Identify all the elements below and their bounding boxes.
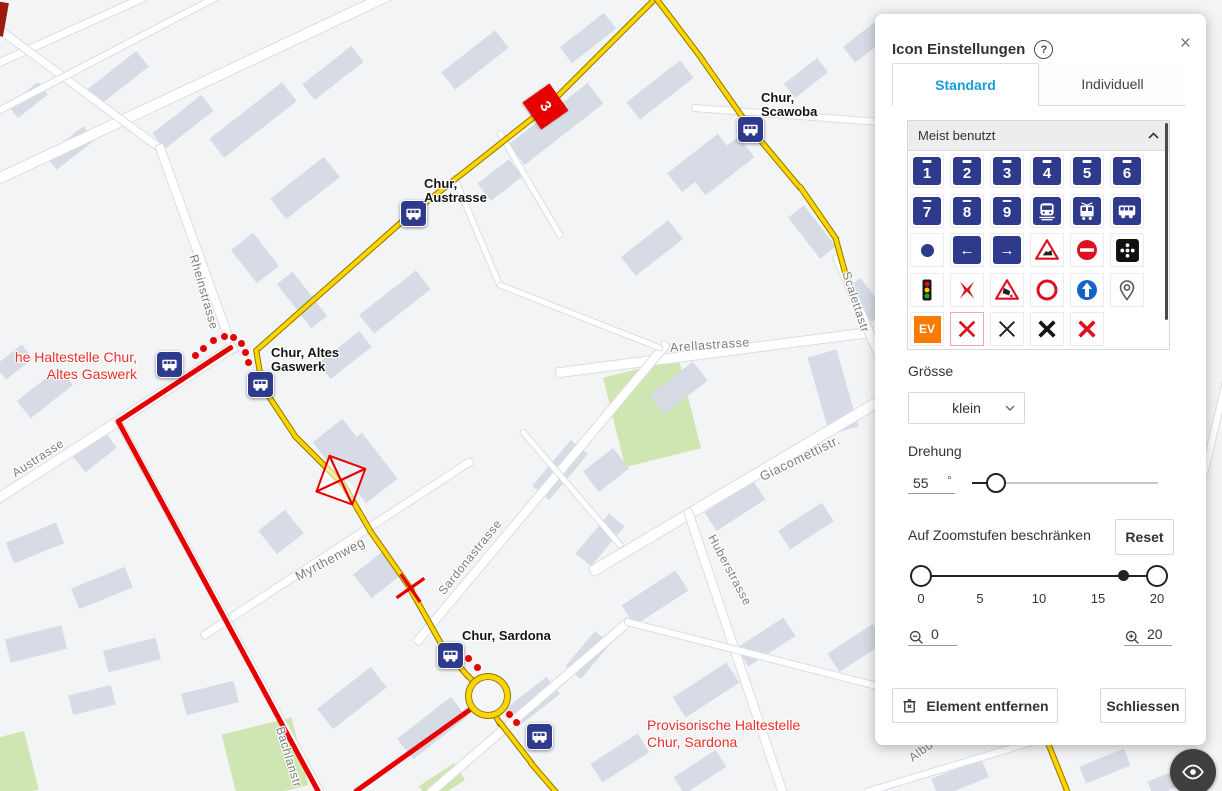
detour-dot <box>230 334 237 341</box>
icon-line-4[interactable]: 4 <box>1030 154 1064 188</box>
chevron-down-icon <box>1005 405 1015 411</box>
icon-pin[interactable] <box>1110 273 1144 307</box>
building <box>359 270 431 333</box>
detour-dot <box>245 359 252 366</box>
building <box>1079 749 1130 784</box>
detour-dot <box>221 333 228 340</box>
rotation-slider-handle[interactable] <box>986 473 1006 493</box>
panel-header: Icon Einstellungen ? <box>892 40 1053 59</box>
stop-label: Chur, Austrasse <box>424 177 487 205</box>
accordion-most-used[interactable]: Meist benutzt <box>908 121 1169 151</box>
remove-element-label: Element entfernen <box>926 698 1048 714</box>
icon-line-1[interactable]: 1 <box>910 154 944 188</box>
trash-icon <box>901 697 918 714</box>
icon-cross-pinch[interactable] <box>950 273 984 307</box>
stop-label: Provisorische Haltestelle Chur, Sardona <box>647 717 800 751</box>
panel-title: Icon Einstellungen <box>892 41 1025 58</box>
zoom-range-min-handle[interactable] <box>910 565 932 587</box>
icon-ev[interactable]: EV <box>910 312 944 346</box>
icon-line-7[interactable]: 7 <box>910 194 944 228</box>
zoom-restrict-label: Auf Zoomstufen beschränken <box>908 527 1091 543</box>
reset-button[interactable]: Reset <box>1115 519 1174 555</box>
rotation-input[interactable]: 55 <box>913 475 929 491</box>
detour-dot <box>513 719 520 726</box>
building <box>560 13 616 63</box>
building <box>231 233 279 283</box>
close-panel-label: Schliessen <box>1106 698 1179 714</box>
street <box>497 282 663 351</box>
tab-bar: Standard Individuell <box>892 63 1186 106</box>
zoom-scale-20: 20 <box>1137 591 1177 606</box>
icon-grid: 123456789←→EV <box>908 151 1169 346</box>
stop-label: Chur, Scawoba <box>761 91 817 119</box>
icon-line-3[interactable]: 3 <box>990 154 1024 188</box>
building <box>591 734 650 783</box>
icon-construction[interactable] <box>1030 233 1064 267</box>
icon-x-thin[interactable] <box>990 312 1024 346</box>
zoom-scale-5: 5 <box>960 591 1000 606</box>
icon-x-redbold[interactable] <box>1070 312 1104 346</box>
detour-dot <box>192 352 199 359</box>
icon-settings-panel: Icon Einstellungen ? × Standard Individu… <box>875 14 1206 745</box>
zoom-scale-15: 15 <box>1078 591 1118 606</box>
icon-library-box: Meist benutzt 123456789←→EV <box>907 120 1170 350</box>
building <box>209 82 296 158</box>
icon-dot[interactable] <box>910 233 944 267</box>
bus-stop-icon[interactable] <box>156 351 183 378</box>
closure-x-marker[interactable] <box>392 571 428 611</box>
icon-line-6[interactable]: 6 <box>1110 154 1144 188</box>
building <box>626 60 693 119</box>
rotation-label: Drehung <box>908 443 962 459</box>
icon-ring[interactable] <box>1030 273 1064 307</box>
icon-grid-scrollbar[interactable] <box>1165 123 1168 320</box>
icon-line-2[interactable]: 2 <box>950 154 984 188</box>
route-yellow <box>528 760 560 791</box>
street-label: Sardonastrasse <box>435 517 504 598</box>
building <box>181 681 239 715</box>
detour-dot <box>506 711 513 718</box>
building <box>258 510 303 555</box>
icon-arrow-right[interactable]: → <box>990 233 1024 267</box>
route-yellow <box>649 0 706 62</box>
park-area <box>0 731 39 791</box>
icon-tram[interactable] <box>1070 194 1104 228</box>
street-label: Giacomettistr. <box>757 432 843 484</box>
bus-stop-icon[interactable] <box>737 116 764 143</box>
icon-x-black[interactable] <box>1030 312 1064 346</box>
building <box>317 667 387 729</box>
tab-standard[interactable]: Standard <box>892 63 1039 106</box>
size-value: klein <box>952 400 981 416</box>
zoom-range-current-dot[interactable] <box>1118 570 1129 581</box>
size-label: Grösse <box>908 363 953 379</box>
bus-stop-icon[interactable] <box>247 371 274 398</box>
stop-label: Chur, Altes Gaswerk <box>271 346 339 374</box>
detour-dot <box>242 349 249 356</box>
zoom-in-icon <box>1124 629 1141 646</box>
icon-arrow-up[interactable] <box>1070 273 1104 307</box>
icon-line-9[interactable]: 9 <box>990 194 1024 228</box>
icon-line-8[interactable]: 8 <box>950 194 984 228</box>
zoom-scale-10: 10 <box>1019 591 1059 606</box>
building <box>622 571 689 626</box>
icon-bus[interactable] <box>1110 194 1144 228</box>
stop-label: Chur, Sardona <box>462 629 551 643</box>
icon-arrow-left[interactable]: ← <box>950 233 984 267</box>
detour-dot <box>210 337 217 344</box>
building <box>441 30 508 89</box>
rotation-input-underline <box>908 493 955 494</box>
zoom-min-underline <box>908 645 957 646</box>
detour-dot <box>465 655 472 662</box>
icon-line-5[interactable]: 5 <box>1070 154 1104 188</box>
bus-stop-icon[interactable] <box>526 723 553 750</box>
zoom-max-underline <box>1124 645 1172 646</box>
icon-dots-black[interactable] <box>1110 233 1144 267</box>
detour-dot <box>238 340 245 347</box>
icon-traffic-light[interactable] <box>910 273 944 307</box>
building <box>674 750 727 791</box>
chevron-up-icon <box>1148 132 1159 139</box>
building <box>673 663 740 718</box>
icon-rockfall[interactable] <box>990 273 1024 307</box>
building <box>6 523 64 564</box>
stop-label: he Haltestelle Chur, Altes Gaswerk <box>0 349 137 383</box>
building <box>5 625 67 662</box>
building <box>778 503 834 550</box>
building <box>621 220 683 276</box>
icon-no-entry[interactable] <box>1070 233 1104 267</box>
zoom-scale-0: 0 <box>901 591 941 606</box>
close-panel-button[interactable]: Schliessen <box>1100 688 1186 723</box>
help-icon[interactable]: ? <box>1034 40 1053 59</box>
visibility-toggle-button[interactable] <box>1170 749 1216 791</box>
roundabout <box>466 674 510 718</box>
bus-stop-icon[interactable] <box>400 200 427 227</box>
detour-dot <box>200 345 207 352</box>
building <box>103 638 161 672</box>
icon-x-red[interactable] <box>950 312 984 346</box>
icon-train[interactable] <box>1030 194 1064 228</box>
building <box>270 157 340 219</box>
building <box>68 685 116 715</box>
route-yellow <box>253 210 415 355</box>
building <box>71 567 133 609</box>
size-select[interactable]: klein <box>908 392 1025 424</box>
street <box>155 144 238 355</box>
accordion-label: Meist benutzt <box>918 128 995 143</box>
zoom-out-icon <box>908 629 925 646</box>
zoom-range-max-handle[interactable] <box>1146 565 1168 587</box>
zoom-max-input[interactable]: 20 <box>1147 626 1163 642</box>
zoom-min-input[interactable]: 0 <box>931 626 939 642</box>
tab-individuell[interactable]: Individuell <box>1039 63 1186 106</box>
route-red <box>115 418 321 791</box>
degree-unit: ° <box>947 473 952 487</box>
building <box>302 46 363 100</box>
route-yellow <box>1045 739 1072 791</box>
remove-element-button[interactable]: Element entfernen <box>892 688 1058 723</box>
close-icon[interactable]: × <box>1180 34 1191 53</box>
bus-stop-icon[interactable] <box>437 642 464 669</box>
detour-dot <box>474 664 481 671</box>
